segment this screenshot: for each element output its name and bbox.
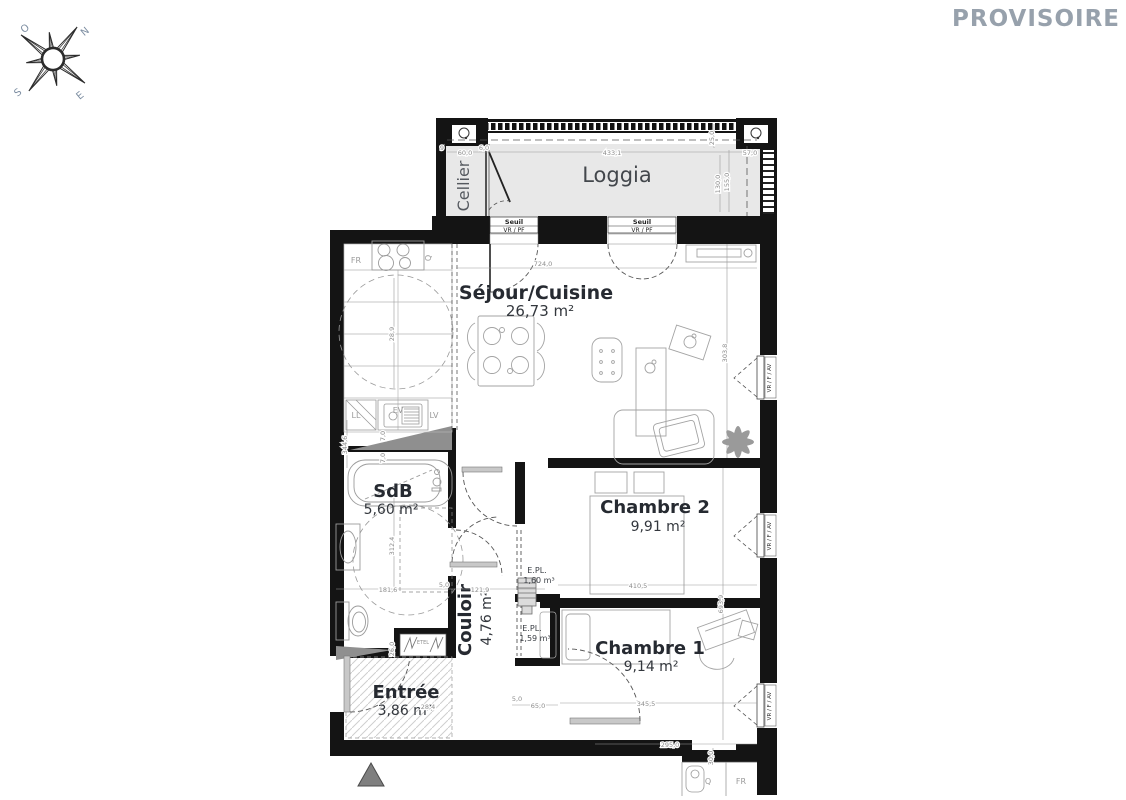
- dim: 181,6: [379, 586, 398, 594]
- epl2-label: E.PL.: [522, 624, 541, 633]
- coffee-table: [592, 338, 622, 382]
- sejour-area: 26,73 m²: [506, 302, 574, 320]
- dim: 130,0: [714, 175, 722, 194]
- threshold-loggia-1: Seuil VR / PF: [490, 217, 538, 244]
- window-label: VR / F / AV: [767, 363, 773, 392]
- dim: 30,0: [707, 751, 715, 765]
- fridge-label: FR: [351, 256, 362, 265]
- epl2-area: 1,59 m³: [519, 634, 550, 643]
- seuil-type: VR / PF: [503, 227, 525, 234]
- window-chambre1: VR / F / AV: [734, 684, 776, 727]
- dim: 25,0: [708, 131, 716, 145]
- dim: 26,0: [388, 642, 396, 656]
- dim: 433,1: [603, 149, 622, 157]
- neighbor-q-label: Q: [705, 777, 711, 786]
- dim: 5,0: [512, 695, 522, 703]
- seuil-label: Seuil: [633, 218, 651, 226]
- dim: 6,0: [479, 144, 489, 152]
- entree-label: Entrée: [372, 682, 439, 703]
- turning-circle: [353, 505, 463, 615]
- sink-label: EV: [393, 406, 404, 415]
- etel-box: ETEL: [400, 634, 446, 656]
- dim: 121,9: [471, 586, 490, 594]
- sdb-area: 5,60 m²: [364, 502, 419, 518]
- seuil-type: VR / PF: [631, 227, 653, 234]
- dim: 410,5: [629, 582, 648, 590]
- dim: 7,0: [379, 431, 387, 441]
- chambre2-area: 9,91 m²: [631, 519, 686, 535]
- turning-circle: [339, 275, 453, 389]
- couloir-area: 4,76 m²: [479, 591, 495, 646]
- dim: 57,0: [743, 149, 757, 157]
- window-ch-sejour: VR / F / AV: [734, 356, 776, 399]
- neighbor-fr-label: FR: [736, 777, 747, 786]
- epl1-area: 1,60 m³: [523, 576, 554, 585]
- dim: 345,5: [637, 700, 656, 708]
- dishwasher-label: LV: [429, 411, 439, 420]
- dim: 65,0: [531, 702, 545, 710]
- dim: 5,0: [439, 581, 449, 589]
- dim: 303,8: [721, 344, 729, 363]
- etel-label: ETEL: [417, 640, 429, 646]
- desk-chambre1: [697, 610, 757, 669]
- floorplan-drawing: Loggia Cellier: [0, 0, 1126, 800]
- dim: 9: [440, 144, 444, 152]
- dim: 60,0: [458, 149, 472, 157]
- loggia-label: Loggia: [582, 163, 652, 187]
- window-chambre2: VR / F / AV: [734, 514, 776, 557]
- cellier-label: Cellier: [454, 160, 473, 211]
- washer-label: LL: [352, 411, 361, 420]
- dim: 344,6: [341, 436, 349, 455]
- window-label: VR / F / AV: [767, 521, 773, 550]
- loggia-zone: Loggia Cellier: [436, 118, 777, 218]
- sofa: [614, 410, 714, 464]
- dim: 295,0: [661, 741, 680, 749]
- dim: 7,0: [379, 453, 387, 463]
- dim: 693,9: [717, 595, 725, 614]
- seuil-label: Seuil: [505, 218, 523, 226]
- sdb-label: SdB: [373, 481, 413, 502]
- chambre1-area: 9,14 m²: [624, 659, 679, 675]
- dim: 724,0: [534, 260, 553, 268]
- threshold-loggia-2: Seuil VR / PF: [608, 217, 676, 244]
- dim: 312,4: [388, 537, 396, 556]
- kitchen-q-label: Q: [424, 255, 433, 261]
- dim: 155,0: [723, 173, 731, 192]
- dim: 28,4: [421, 703, 435, 711]
- tv-console: [686, 245, 756, 262]
- chambre2-label: Chambre 2: [600, 497, 710, 518]
- hob-icon: [372, 241, 424, 271]
- sejour-label: Séjour/Cuisine: [459, 282, 613, 304]
- chambre1-label: Chambre 1: [595, 638, 705, 659]
- entrance-marker-icon: [358, 763, 384, 786]
- couloir-label: Couloir: [455, 584, 476, 656]
- floorplan-page: PROVISOIRE O N S E: [0, 0, 1126, 800]
- window-label: VR / F / AV: [767, 691, 773, 720]
- epl1-label: E.PL.: [527, 566, 546, 575]
- dining-table: [468, 316, 545, 386]
- dim: 28,9: [388, 327, 396, 341]
